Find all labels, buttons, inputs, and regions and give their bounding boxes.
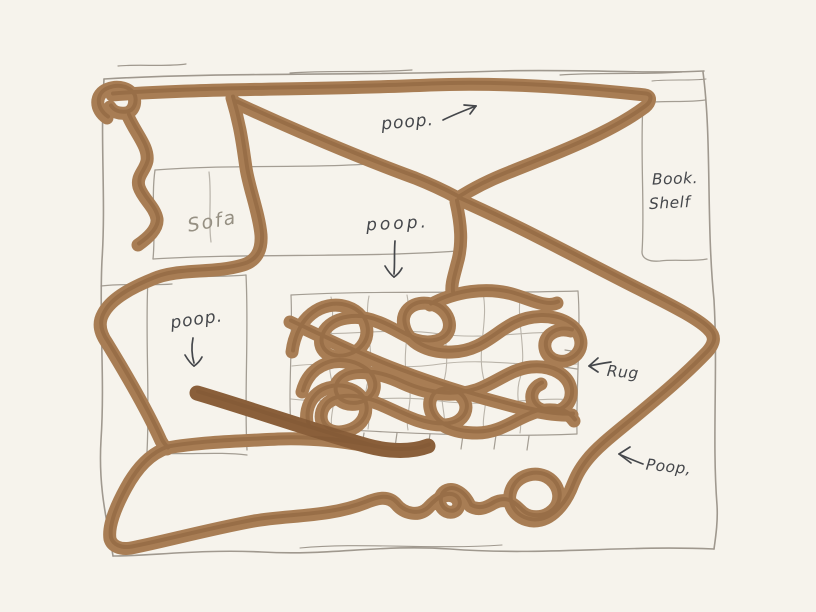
label-poop-middle: poop.	[365, 212, 430, 235]
label-rug: Rug	[606, 362, 639, 383]
sketch-canvas: poop. poop. Sofa Book. Shelf poop. Rug P…	[0, 0, 816, 612]
label-bookshelf-line2: Shelf	[649, 193, 693, 213]
label-bookshelf-line1: Book.	[652, 169, 699, 189]
